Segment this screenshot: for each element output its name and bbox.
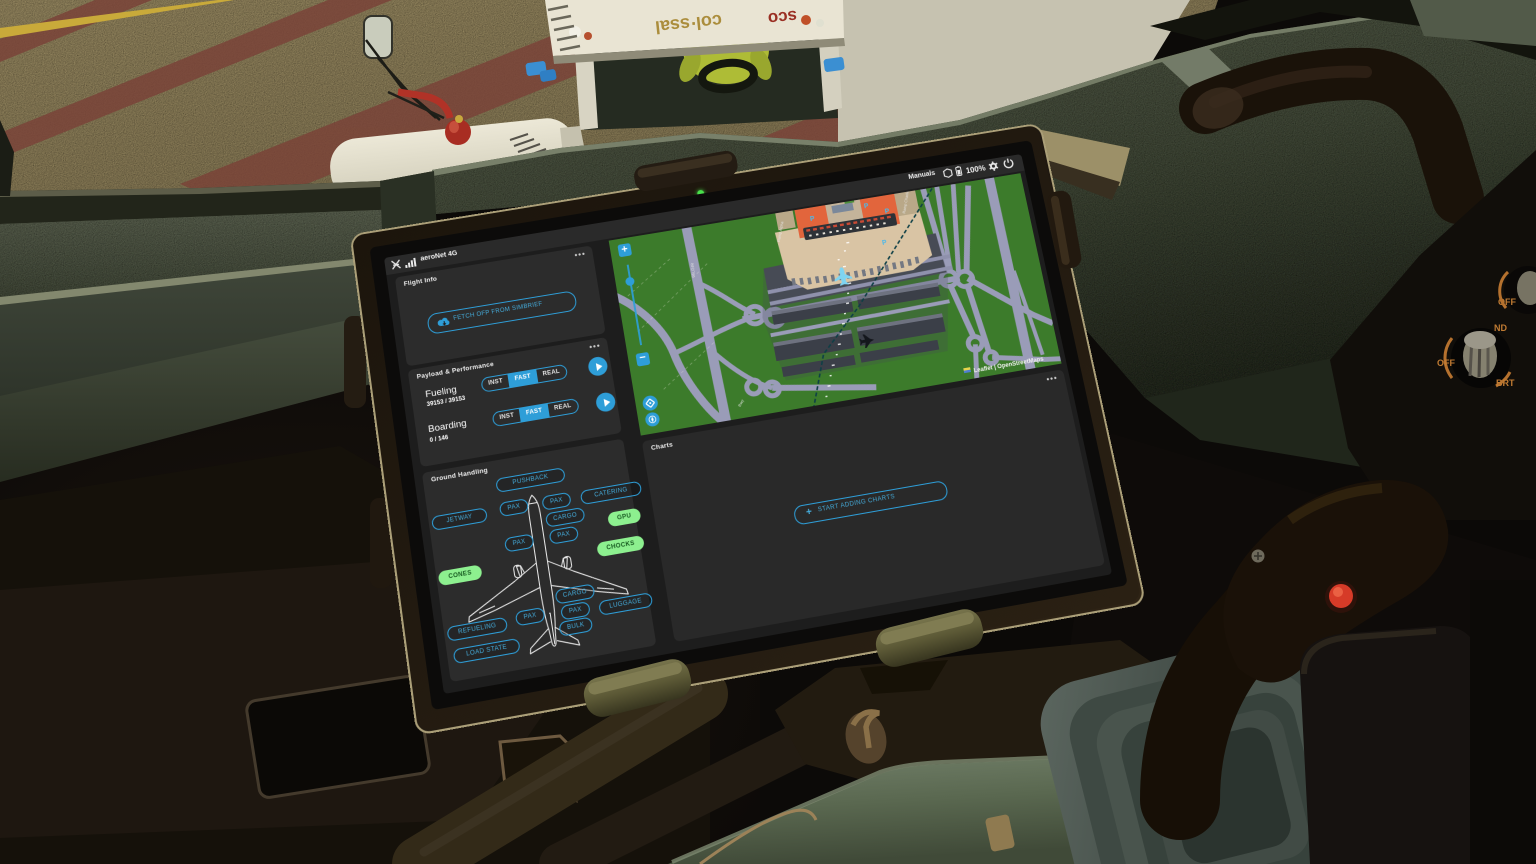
- svg-text:100%: 100%: [965, 164, 986, 176]
- svg-text:OFF: OFF: [1437, 358, 1455, 368]
- svg-text:BRT: BRT: [1496, 378, 1515, 388]
- svg-text:ND: ND: [1494, 323, 1507, 333]
- svg-text:sco: sco: [767, 6, 798, 28]
